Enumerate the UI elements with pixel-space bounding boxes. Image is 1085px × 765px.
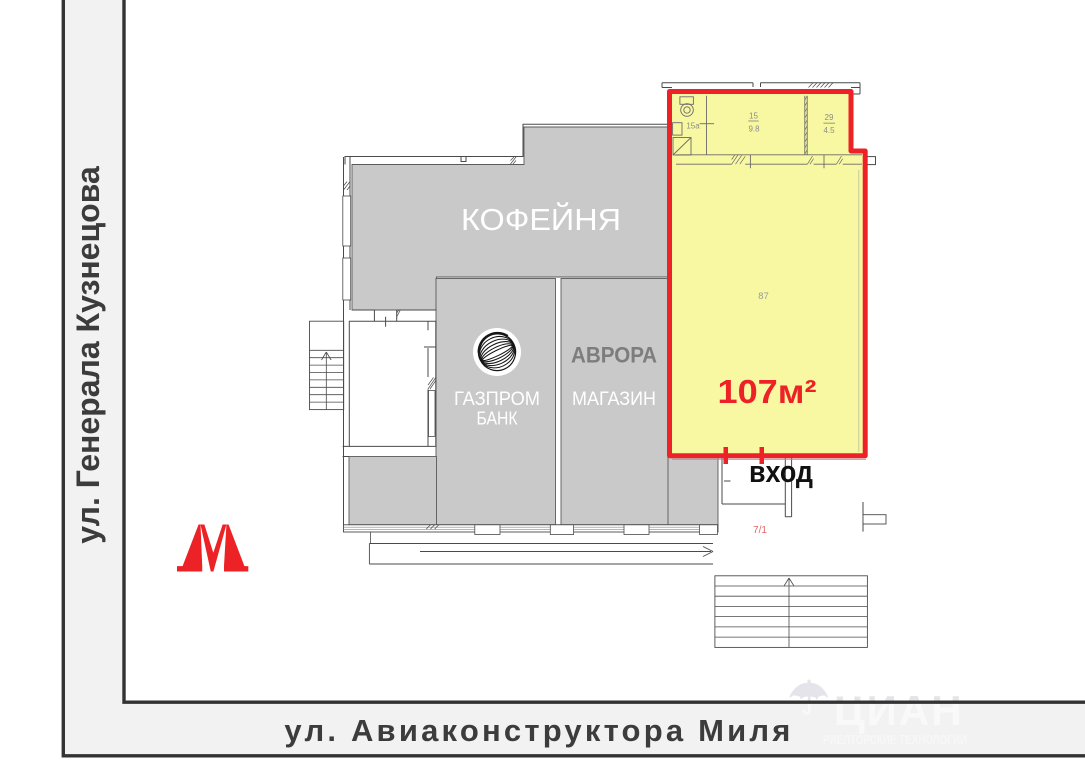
svg-text:87: 87	[758, 291, 769, 302]
svg-text:ул. Генерала Кузнецова: ул. Генерала Кузнецова	[70, 166, 106, 544]
svg-text:РИЕЛТОРСКИЕ ТЕХНОЛОГИИ: РИЕЛТОРСКИЕ ТЕХНОЛОГИИ	[823, 733, 967, 747]
svg-text:БАНК: БАНК	[477, 409, 518, 429]
svg-text:7/1: 7/1	[753, 525, 767, 536]
svg-text:КОФЕЙНЯ: КОФЕЙНЯ	[461, 201, 621, 237]
svg-text:15а: 15а	[686, 122, 700, 131]
svg-text:107м²: 107м²	[718, 373, 817, 410]
svg-text:АВРОРА: АВРОРА	[571, 343, 657, 368]
svg-text:15: 15	[749, 112, 758, 121]
svg-text:29: 29	[825, 113, 834, 122]
svg-text:ул. Авиаконструктора Миля: ул. Авиаконструктора Миля	[284, 713, 793, 748]
svg-text:ГАЗПРОМ: ГАЗПРОМ	[454, 389, 540, 410]
svg-text:вход: вход	[749, 454, 813, 489]
svg-text:4.5: 4.5	[823, 126, 835, 135]
svg-text:9.8: 9.8	[748, 125, 760, 134]
svg-text:МАГАЗИН: МАГАЗИН	[572, 389, 656, 410]
